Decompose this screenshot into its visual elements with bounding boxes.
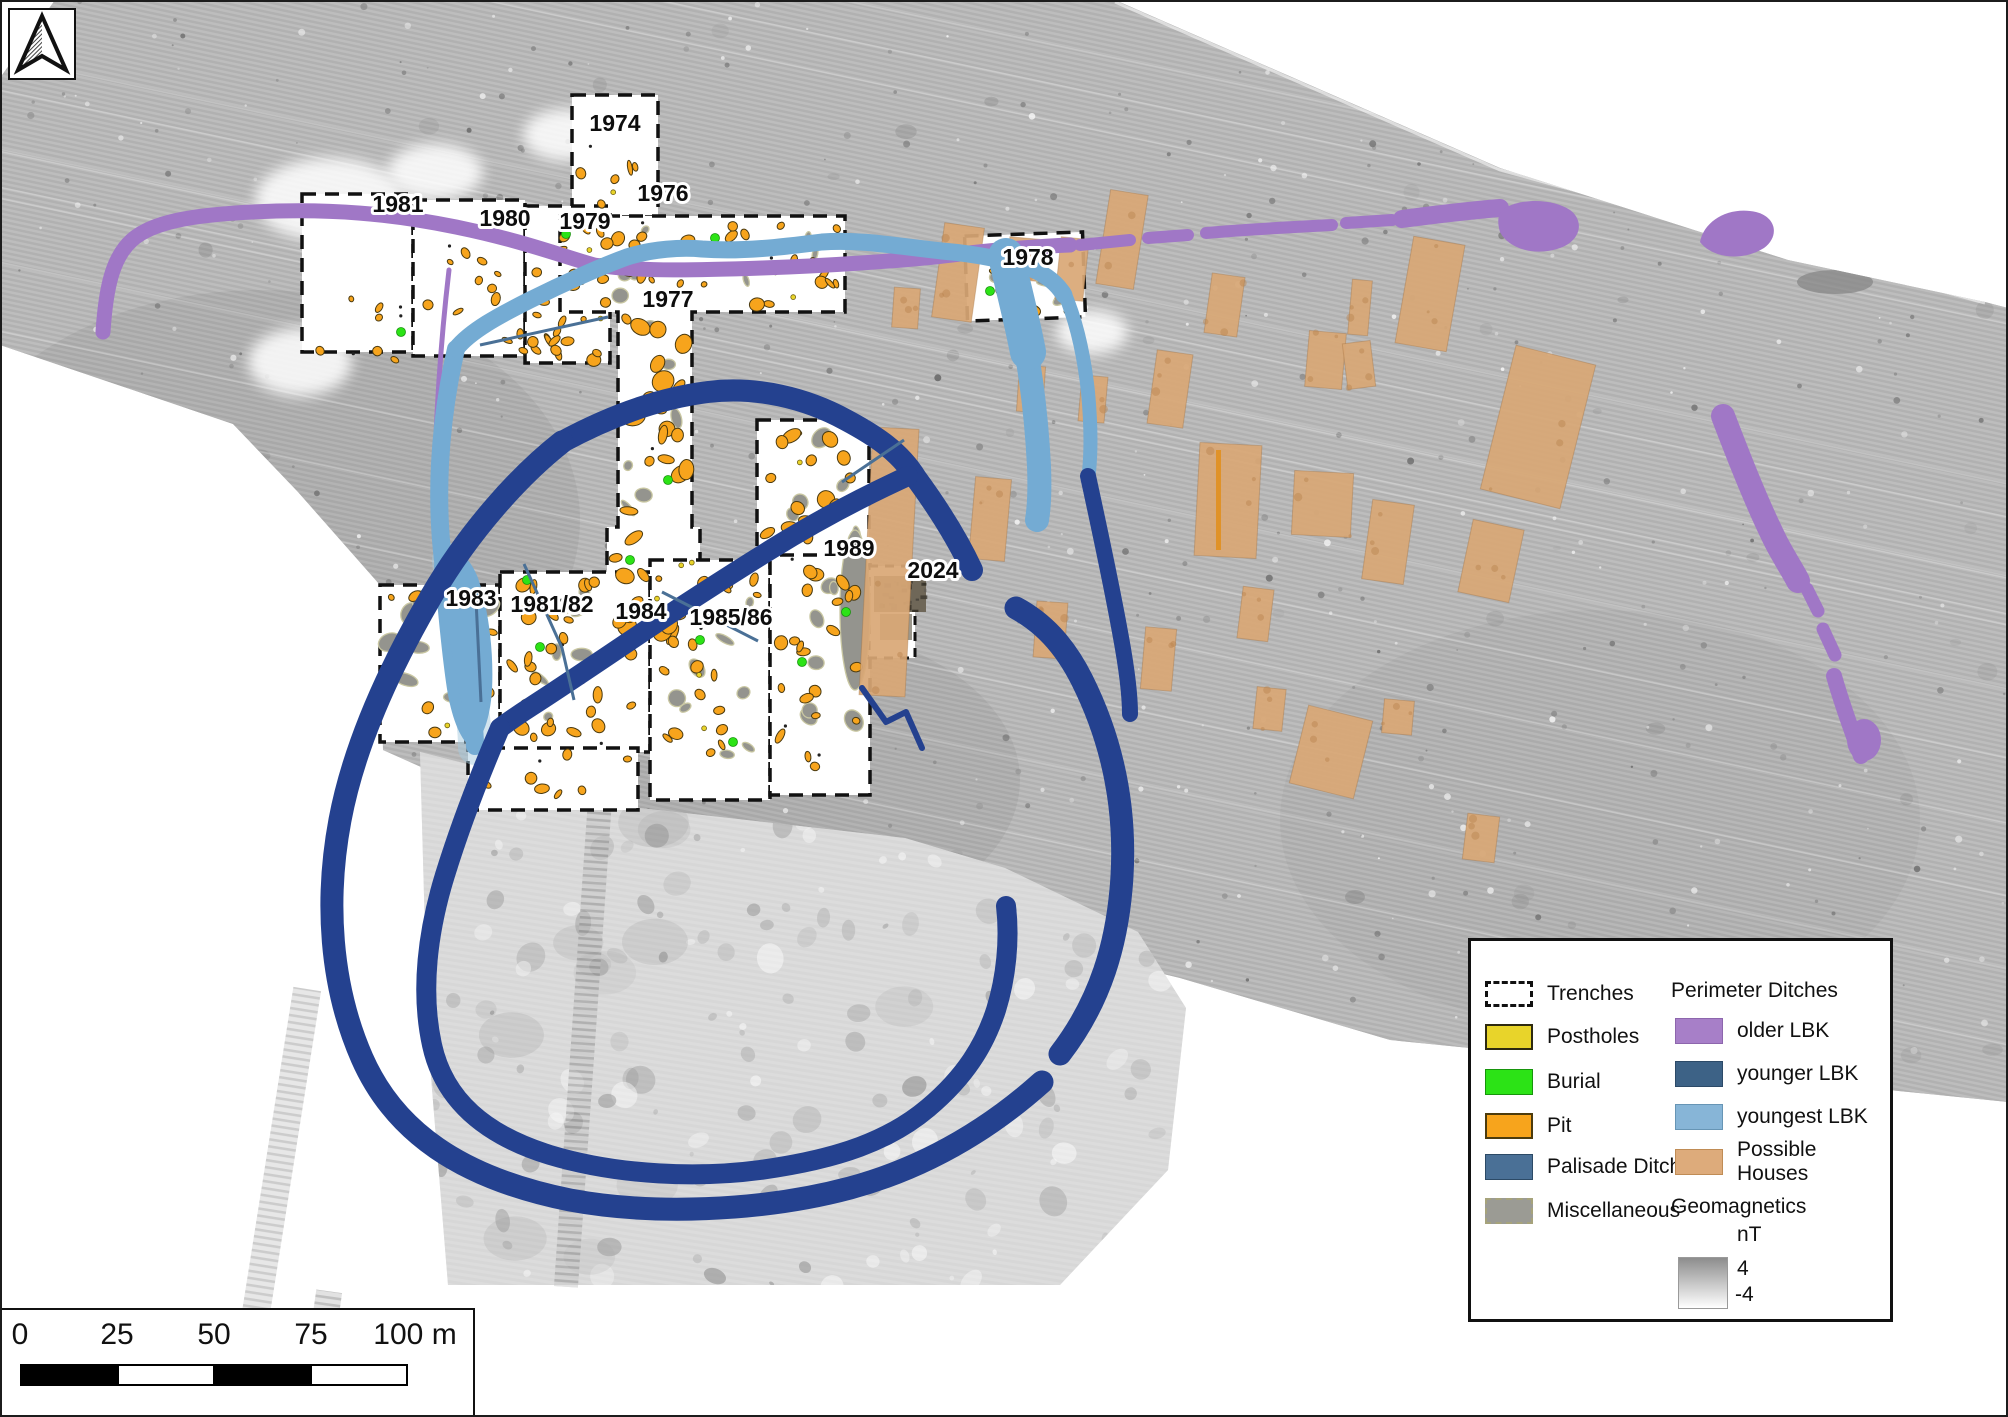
scale-segment [119,1366,216,1384]
geomagnetics-unit: nT [1737,1223,1762,1247]
small-feature-dot [784,724,787,727]
trench-label-1981: 1981 [372,191,423,217]
burial-feature [664,476,673,485]
possible-house [1380,699,1414,736]
scale-tick: 75 [294,1318,327,1352]
pit-feature [623,756,632,762]
pit-feature [593,687,602,704]
posthole-feature [797,460,802,465]
legend-label: Palisade Ditch [1547,1155,1681,1179]
burial-feature [626,556,635,565]
posthole-feature [689,560,694,565]
legend-label: younger LBK [1737,1062,1858,1086]
legend-item-older: older LBK [1675,1016,1829,1046]
burial-feature [536,643,545,652]
small-feature-dot [600,742,603,745]
scale-segment [312,1366,407,1384]
possible-house [1305,329,1347,390]
pit-feature [711,669,717,681]
scale-tick: 25 [100,1318,133,1352]
legend-item-younger: younger LBK [1675,1059,1858,1089]
legend-swatch-younger [1675,1061,1723,1087]
legend-label: Burial [1547,1070,1601,1094]
small-feature-dot [651,447,654,450]
posthole-feature [445,723,450,728]
pit-feature [372,346,382,356]
small-feature-dot [399,305,402,308]
legend-item-postholes: Postholes [1485,1022,1639,1052]
scale-bar-segments [20,1364,408,1386]
north-arrow [8,8,76,80]
trench-label-1983: 1983 [445,585,496,611]
scale-tick-end: 100 m [373,1318,456,1352]
legend-swatch-youngest [1675,1104,1723,1130]
legend-swatch-misc [1485,1198,1533,1224]
trench-label-1980: 1980 [479,205,530,231]
geomagnetics-gradient [1678,1257,1728,1309]
small-feature-dot [818,753,821,756]
legend-label: youngest LBK [1737,1105,1868,1129]
legend-swatch-palisade [1485,1154,1533,1180]
miscellaneous-feature [612,288,629,303]
scale-segment [22,1366,119,1384]
map-legend: TrenchesPostholesBurialPitPalisade Ditch… [1468,938,1893,1322]
pit-feature [429,727,441,738]
legend-swatch-older [1675,1018,1723,1044]
small-feature-dot [770,256,773,259]
possible-house [1462,813,1499,863]
legend-label: Pit [1547,1114,1572,1138]
legend-item-trenches: Trenches [1485,979,1634,1009]
legend-swatch-burial [1485,1069,1533,1095]
burial-feature [842,608,851,617]
possible-house [1253,685,1287,733]
legend-label: Trenches [1547,982,1634,1006]
small-feature-dot [641,221,644,224]
trench-label-1981-82: 1981/82 [510,591,593,617]
pit-feature [600,297,611,307]
survey-hatched-strip [242,987,321,1317]
posthole-feature [611,190,616,195]
legend-label: Miscellaneous [1547,1199,1680,1223]
scale-tick: 50 [197,1318,230,1352]
burial-feature [397,328,406,337]
scale-tick: 0 [12,1318,29,1352]
trench-label-1977: 1977 [642,286,693,312]
possible-house [1194,442,1262,558]
trench-label-1985-86: 1985/86 [689,604,772,630]
legend-label: Possible Houses [1737,1138,1890,1186]
small-feature-dot [352,352,355,355]
legend-swatch-houses [1675,1149,1723,1175]
legend-header-geomagnetics: Geomagnetics [1671,1195,1806,1219]
pit-feature [671,428,683,442]
trench-label-1978: 1978 [1002,244,1053,270]
legend-swatch-pit [1485,1113,1533,1139]
geomagnetics-min: -4 [1735,1283,1754,1307]
legend-item-burial: Burial [1485,1067,1601,1097]
legend-item-youngest: youngest LBK [1675,1102,1868,1132]
trench-label-1979: 1979 [559,208,610,234]
legend-item-houses: Possible Houses [1675,1147,1890,1177]
posthole-feature [587,248,592,253]
scale-bar: 0255075100 m [2,1308,475,1417]
trench-label-2024: 2024 [907,557,958,583]
house-internal-line [1216,450,1221,550]
small-feature-dot [399,314,402,317]
burial-feature [986,287,995,296]
burial-feature [798,658,807,667]
small-feature-dot [791,558,794,561]
legend-label: older LBK [1737,1019,1829,1043]
trench-label-1984: 1984 [615,598,666,624]
legend-item-misc: Miscellaneous [1485,1196,1680,1226]
trench-label-1989: 1989 [823,535,874,561]
posthole-feature [697,673,702,678]
legend-swatch-postholes [1485,1024,1533,1050]
map-figure: 197419761977197819791980198119831981/821… [0,0,2008,1417]
possible-house [1236,586,1274,641]
small-feature-dot [538,759,541,762]
possible-house [968,477,1011,562]
legend-item-pit: Pit [1485,1111,1572,1141]
legend-header-perimeter-ditches: Perimeter Ditches [1671,979,1838,1003]
trench-label-1974: 1974 [589,110,640,136]
small-feature-dot [589,145,592,148]
posthole-feature [791,295,796,300]
trench-label-1976: 1976 [637,180,688,206]
posthole-feature [679,563,684,568]
burial-feature [729,738,738,747]
burial-feature [696,636,705,645]
legend-label: Postholes [1547,1025,1639,1049]
possible-house [1291,470,1355,537]
geomagnetics-max: 4 [1737,1257,1749,1281]
legend-item-palisade: Palisade Ditch [1485,1152,1681,1182]
possible-house [1140,627,1177,692]
scale-segment [215,1366,312,1384]
possible-house [892,287,921,329]
pit-feature [811,712,821,719]
legend-swatch-trenches [1485,981,1533,1007]
small-feature-dot [448,244,451,247]
posthole-feature [702,726,707,731]
